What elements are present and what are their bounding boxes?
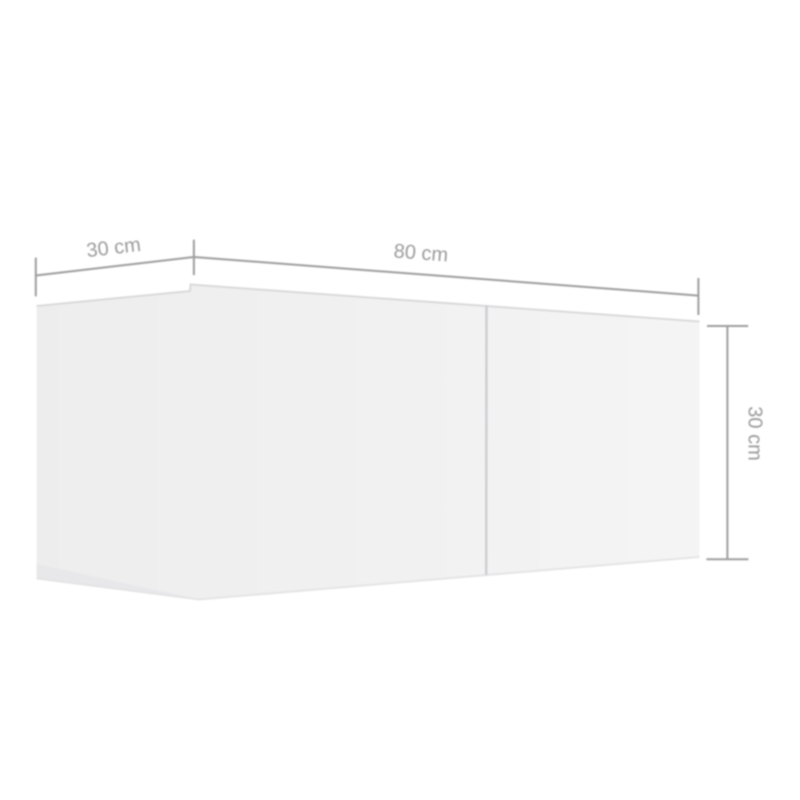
svg-text:30 cm: 30 cm [85,234,142,262]
svg-text:30 cm: 30 cm [744,406,766,460]
svg-text:80 cm: 80 cm [393,240,449,266]
